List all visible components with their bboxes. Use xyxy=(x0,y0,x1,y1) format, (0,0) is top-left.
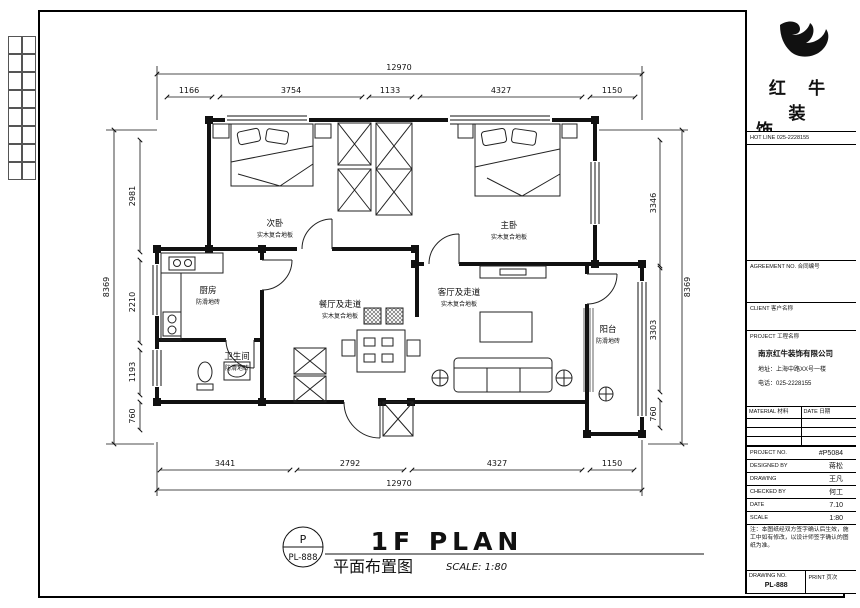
plan-title-cn: 平面布置图 xyxy=(333,557,413,576)
dim-left-total: 8369 xyxy=(102,277,111,297)
company-phone: 电话：025-2228155 xyxy=(758,378,853,387)
columns xyxy=(153,116,646,438)
room-floor-ciwo: 实木复合地板 xyxy=(257,231,293,239)
room-name-keting: 客厅及走道 xyxy=(438,287,481,298)
company-logo-cell: 红 牛 装 饰 xyxy=(747,10,856,132)
room-floor-canting: 实木复合地板 xyxy=(322,312,358,320)
dim-right-total: 8369 xyxy=(683,277,692,297)
info-row-drawing: DRAWING 王凡 xyxy=(747,473,856,486)
binding-strip xyxy=(8,36,36,180)
sheet-title: P PL-888 1F PLAN 平面布置图 SCALE: 1:80 xyxy=(283,527,704,576)
room-floor-chufang: 防滑地砖 xyxy=(196,298,220,306)
dim-bottom-1: 3441 xyxy=(215,459,235,468)
room-floor-weishengjian: 防滑地砖 xyxy=(225,364,249,372)
material-date-table: MATERIAL 材料 DATE 日期 xyxy=(747,407,856,447)
room-name-chufang: 厨房 xyxy=(199,285,216,296)
dim-right-3: 760 xyxy=(649,406,658,421)
company-name: 南京红牛装饰有限公司 xyxy=(758,348,853,359)
room-name-yangtai: 阳台 xyxy=(599,324,616,335)
furniture xyxy=(161,123,613,436)
company-address: 地址：上海中路XX号一楼 xyxy=(758,364,853,373)
date-header: DATE 日期 xyxy=(802,407,857,419)
stamp-number: PL-888 xyxy=(288,553,317,563)
floor-plan: 次卧 实木复合地板 主卧 实木复合地板 厨房 防滑地砖 餐厅及走道 实木复合地板… xyxy=(42,12,742,594)
plan-scale: SCALE: 1:80 xyxy=(446,562,507,573)
dim-left-3: 1193 xyxy=(128,362,137,382)
dim-bottom-total: 12970 xyxy=(386,479,411,488)
room-name-ciwo: 次卧 xyxy=(266,218,284,229)
info-row-scale: SCALE 1:80 xyxy=(747,512,856,525)
plan-title-en: 1F PLAN xyxy=(371,527,524,556)
dim-top-2: 3754 xyxy=(281,86,301,95)
room-name-canting: 餐厅及走道 xyxy=(319,299,362,310)
client-cell: CLIENT 客户名称 xyxy=(747,303,856,331)
drawing-no-cell: DRAWING NO. PL-888 xyxy=(747,571,806,593)
info-row-project-no: PROJECT NO. #P5084 xyxy=(747,447,856,460)
dim-bottom-3: 4327 xyxy=(487,459,507,468)
info-row-designed-by: DESIGNED BY 蒋松 xyxy=(747,460,856,473)
project-cell: PROJECT 工程名称 南京红牛装饰有限公司 地址：上海中路XX号一楼 电话：… xyxy=(747,331,856,407)
doors xyxy=(226,219,617,438)
info-row-date: DATE 7.10 xyxy=(747,499,856,512)
room-floor-zhuwo: 实木复合地板 xyxy=(491,233,527,241)
walls xyxy=(157,120,642,434)
room-labels: 次卧 实木复合地板 主卧 实木复合地板 厨房 防滑地砖 餐厅及走道 实木复合地板… xyxy=(196,218,620,372)
dim-left-2: 2210 xyxy=(128,292,137,312)
dim-top-3: 1133 xyxy=(380,86,400,95)
bull-logo-icon xyxy=(770,17,834,67)
info-row-checked-by: CHECKED BY 何工 xyxy=(747,486,856,499)
drawing-no-row: DRAWING NO. PL-888 PRINT 页次 xyxy=(747,571,856,594)
company-info: 南京红牛装饰有限公司 地址：上海中路XX号一楼 电话：025-2228155 xyxy=(750,348,853,387)
dim-top-5: 1150 xyxy=(602,86,622,95)
project-label: PROJECT 工程名称 xyxy=(750,334,799,340)
room-floor-yangtai: 防滑地砖 xyxy=(596,337,620,345)
note-cell: 注：本图纸经双方签字确认后生效，施工中如有修改，以设计师签字确认的图纸为准。 xyxy=(747,525,856,571)
empty-cell xyxy=(747,145,856,261)
hotline: HOT LINE 025-2228155 xyxy=(747,132,856,145)
room-name-zhuwo: 主卧 xyxy=(500,220,518,231)
dim-top-4: 4327 xyxy=(491,86,511,95)
dimensions xyxy=(106,66,688,496)
dim-top-total: 12970 xyxy=(386,63,411,72)
room-floor-keting: 实木复合地板 xyxy=(441,300,477,308)
drawing-sheet: 次卧 实木复合地板 主卧 实木复合地板 厨房 防滑地砖 餐厅及走道 实木复合地板… xyxy=(0,0,860,608)
dim-bottom-2: 2792 xyxy=(340,459,360,468)
print-cell: PRINT 页次 xyxy=(806,571,856,593)
dim-top-1: 1166 xyxy=(179,86,199,95)
brand-name-line1: 红 牛 装 xyxy=(750,74,853,124)
stamp-letter: P xyxy=(300,533,307,546)
agreement-cell: AGREEMENT NO. 合同编号 xyxy=(747,261,856,303)
brand-name-line2: 饰 xyxy=(756,124,853,132)
room-name-weishengjian: 卫生间 xyxy=(224,351,250,362)
dim-right-1: 3346 xyxy=(649,193,658,213)
dim-bottom-4: 1150 xyxy=(602,459,622,468)
title-block: 红 牛 装 饰 HOT LINE 025-2228155 AGREEMENT N… xyxy=(745,10,856,594)
dim-right-2: 3303 xyxy=(649,320,658,340)
material-header: MATERIAL 材料 xyxy=(747,407,802,419)
dimension-texts: 12970 1166 3754 1133 4327 1150 3441 2792… xyxy=(102,63,692,488)
dim-left-4: 760 xyxy=(128,408,137,423)
dim-left-1: 2981 xyxy=(128,186,137,206)
